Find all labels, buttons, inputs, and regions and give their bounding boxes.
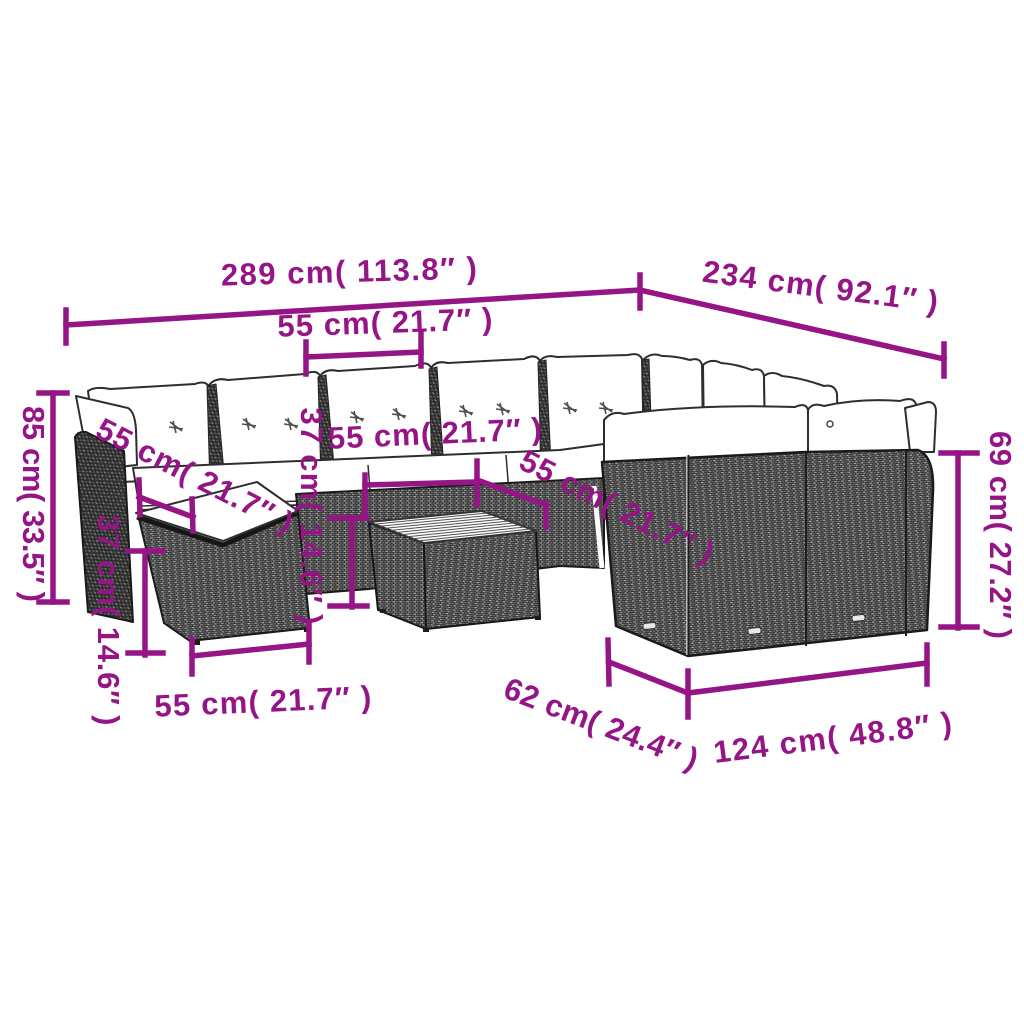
svg-text:37 cm( 14.6″ ): 37 cm( 14.6″ ) — [294, 408, 329, 625]
svg-text:55 cm( 21.7″ ): 55 cm( 21.7″ ) — [154, 679, 372, 723]
svg-text:69 cm( 27.2″ ): 69 cm( 27.2″ ) — [983, 431, 1018, 639]
svg-text:85 cm( 33.5″ ): 85 cm( 33.5″ ) — [16, 406, 51, 602]
svg-text:289 cm( 113.8″ ): 289 cm( 113.8″ ) — [220, 250, 477, 292]
svg-text:124 cm( 48.8″ ): 124 cm( 48.8″ ) — [711, 705, 953, 770]
svg-text:37 cm( 14.6″ ): 37 cm( 14.6″ ) — [91, 515, 126, 726]
svg-text:55 cm( 21.7″ ): 55 cm( 21.7″ ) — [277, 301, 493, 343]
